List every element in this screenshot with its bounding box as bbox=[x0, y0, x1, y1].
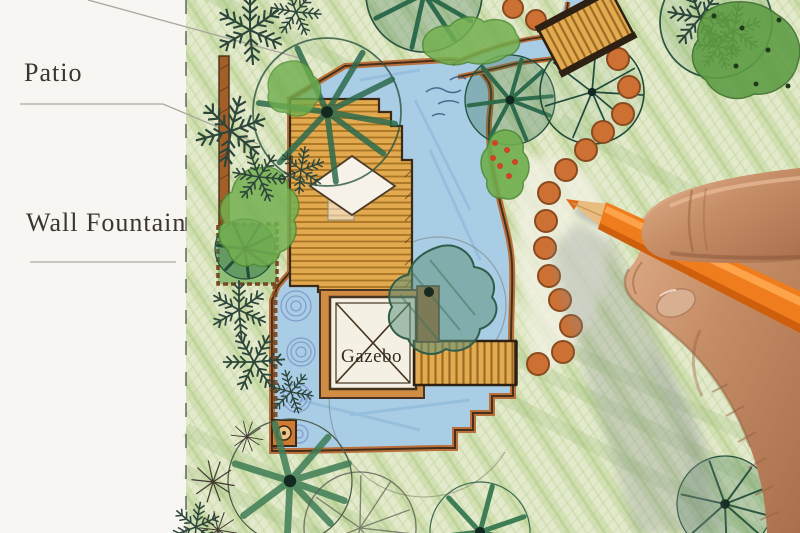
wall-fountain-label: Wall Fountain bbox=[26, 208, 186, 238]
patio-label: Patio bbox=[24, 58, 82, 88]
gazebo-label: Gazebo bbox=[341, 346, 402, 367]
landscape-plan-photo: Gazebo bbox=[0, 0, 800, 533]
